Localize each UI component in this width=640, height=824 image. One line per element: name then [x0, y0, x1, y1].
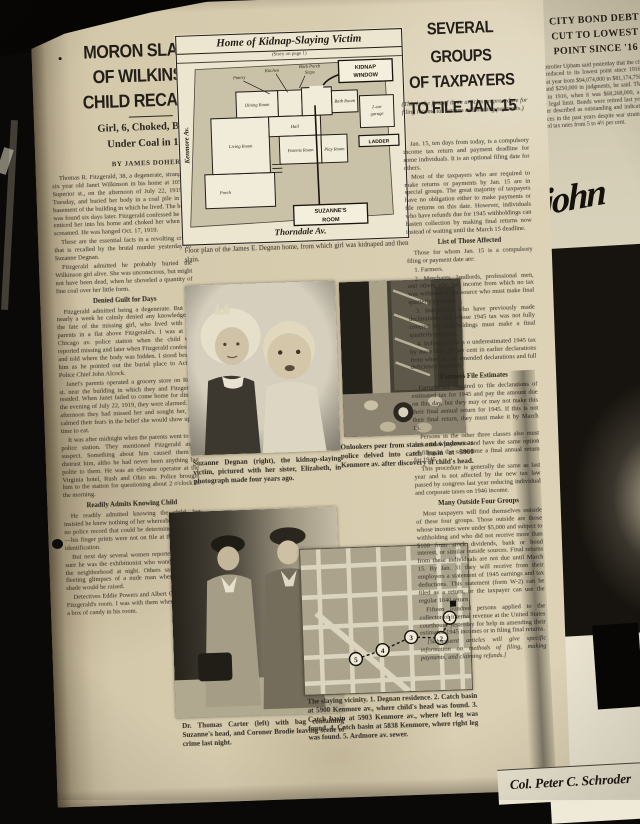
suzanne-callout-1: SUZANNE'S [315, 208, 347, 215]
page-gap-shadow [592, 622, 640, 709]
evidence-bag [198, 652, 233, 681]
label-pantry: Pantry [232, 75, 247, 80]
paragraph: Fitzgerald admitted he probably buried t… [55, 259, 193, 295]
label-garage1: 2-car [372, 104, 382, 109]
label-ladder: LADDER [369, 139, 390, 146]
children-photo-caption: Suzanne Degnan (right), the kidnap-slayi… [193, 454, 342, 486]
headline-line: SEVERAL GROUPS [396, 13, 525, 74]
label-bath: Bath Room [334, 98, 355, 104]
kidnap-callout-1: KIDNAP [355, 64, 377, 71]
label-garage2: garage [370, 111, 383, 116]
room-kitchen [278, 90, 303, 117]
paragraph: It was after midnight when the parents w… [61, 432, 200, 500]
suzanne-callout-2: ROOM [322, 217, 340, 224]
photo-suzanne-and-sister [185, 281, 341, 456]
street-kenmore: Kenmore Av. [182, 127, 191, 165]
paragraph: Jan. 15, ten days from today, is a compu… [403, 137, 530, 173]
newspaper-page: • MORON SLAYING OF WILKINSON CHILD RECAL… [30, 0, 571, 808]
baby-gown [260, 380, 326, 453]
ad-name-line: Col. Peter C. Schroder [497, 762, 640, 805]
label-porch: Porch [219, 190, 232, 195]
room-porch [205, 172, 276, 208]
label-parents: Parents Room [287, 147, 315, 153]
headline-bullet-icon: • [58, 51, 68, 61]
street-thorndale: Thorndale Av. [274, 225, 326, 237]
punch-hole [52, 539, 63, 549]
room-suzanne [301, 87, 332, 116]
kidnap-callout-2: WINDOW [353, 72, 378, 79]
label-play: Play Room [323, 146, 345, 152]
paragraph: 4. Individuals w h o underestimated 1945… [410, 336, 537, 372]
paragraph: These are the essential facts in a revol… [54, 235, 192, 263]
paragraph: Most of the taxpayers who are required t… [404, 169, 532, 237]
decorative-rule [129, 115, 173, 118]
paragraph: 2. Merchants, landlords, professional me… [408, 271, 535, 307]
label-backsteps2: Steps [305, 69, 315, 74]
paragraph: Thomas R. Fitzgerald, 38, a degenerate, … [52, 171, 191, 239]
floorplan-diagram: Home of Kidnap-Slaying Victim (Story on … [175, 28, 409, 246]
label-living: Living Room [228, 143, 253, 149]
floorplan-drawing: Porch Living Room Dining Room Hall Paren… [177, 56, 404, 242]
children-photo-art [185, 281, 341, 456]
label-backsteps1: Back Porch [299, 63, 321, 69]
label-kitchen: Kitchen [264, 68, 280, 74]
label-hall: Hall [290, 124, 300, 129]
paragraph: Janet's parents operated a grocery store… [59, 376, 198, 436]
paragraph: Fitzgerald admitted being a degenerate. … [57, 304, 196, 380]
label-dining: Dining Room [244, 102, 270, 108]
paragraph: 3. Individuals who have previously made … [409, 304, 536, 340]
